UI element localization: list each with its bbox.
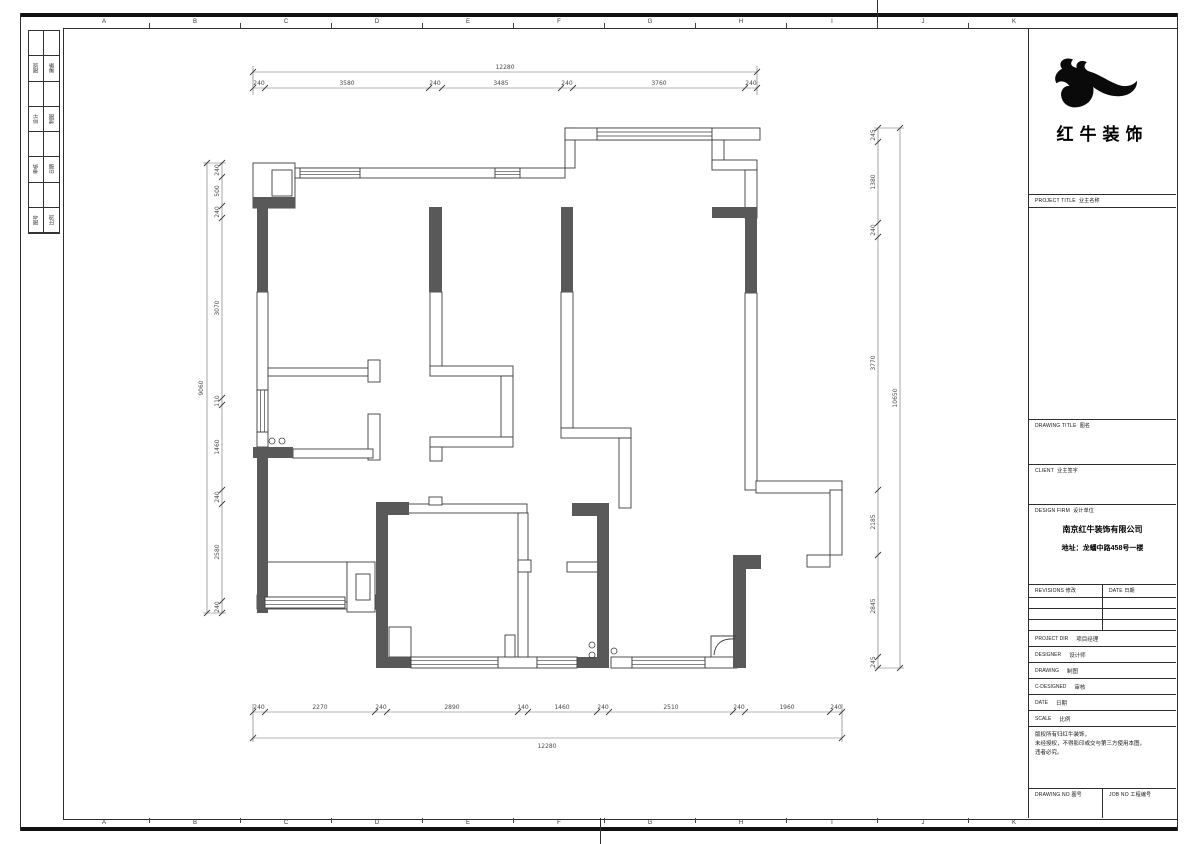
- wall-outline: [272, 170, 292, 196]
- copyright-notes: 版权所有归红牛装饰，未经授权，不得影印或交与第三方使用本图，违者必究。: [1029, 727, 1176, 789]
- wall-outline: [611, 657, 632, 668]
- dimension-label: 500: [214, 185, 221, 197]
- revision-row-empty: [1029, 598, 1176, 609]
- revision-row-empty: [1029, 620, 1176, 631]
- wall-outline: [498, 657, 537, 668]
- drawing-sheet: { "sheet": { "grid": { "letters": ["A","…: [0, 0, 1200, 844]
- window: [632, 657, 705, 668]
- wall-outline: [268, 368, 376, 376]
- dimension-label: 240: [870, 224, 877, 236]
- title-block: 红牛装饰 PROJECT TITLE 业主名称 DRAWING TITLE 图名…: [1028, 28, 1176, 818]
- dimension-label: 2845: [870, 598, 877, 613]
- dimension-label: 240: [214, 601, 221, 613]
- wall-solid: [572, 503, 609, 516]
- dimension-label: 2270: [312, 704, 327, 711]
- project-info-empty-cell: [1029, 208, 1176, 420]
- wall-outline: [265, 562, 347, 602]
- wall-solid: [257, 447, 268, 613]
- wall-outline: [257, 292, 268, 390]
- dimension-label: 3485: [493, 80, 508, 87]
- signature-row: PROJECT DIR项目经理: [1029, 631, 1176, 647]
- window: [495, 168, 520, 178]
- signature-row: C-DESIGNED审核: [1029, 679, 1176, 695]
- wall-solid: [745, 218, 757, 293]
- dimension-label: 3580: [339, 80, 354, 87]
- dimension-label: 110: [214, 395, 221, 407]
- wall-outline: [712, 160, 757, 170]
- drawing-no-cell: DRAWING NO 图号: [1029, 789, 1102, 818]
- wall-outline: [561, 292, 573, 428]
- wall-outline: [293, 449, 373, 458]
- note-line: 版权所有归红牛装饰，: [1035, 731, 1172, 740]
- window: [537, 657, 577, 668]
- wall-solid: [429, 207, 442, 292]
- shower-corner-arc: [714, 639, 735, 655]
- signature-row: DRAWING制图: [1029, 663, 1176, 679]
- signature-row: DESIGNER设计师: [1029, 647, 1176, 663]
- dimension-label: 240: [830, 704, 842, 711]
- wall-solid: [376, 502, 409, 515]
- project-title-label: PROJECT TITLE 业主名称: [1029, 195, 1176, 204]
- wall-outline: [807, 555, 830, 567]
- wall-outline: [501, 376, 513, 437]
- wall-outline: [518, 513, 528, 657]
- dimension-label: 1380: [870, 174, 877, 189]
- signature-row: SCALE比例: [1029, 711, 1176, 727]
- wall-outline: [430, 437, 513, 447]
- dimension-label: 2185: [870, 514, 877, 529]
- dimension-label: 1960: [779, 704, 794, 711]
- wall-solid: [388, 657, 411, 668]
- design-firm-label: DESIGN FIRM 设计单位: [1029, 505, 1176, 514]
- dimension-label: 1460: [554, 704, 569, 711]
- wall-outline: [257, 432, 268, 447]
- dimension-label: 240: [597, 704, 609, 711]
- window: [300, 168, 360, 178]
- company-logo-bull-icon: [1029, 56, 1139, 118]
- door-handle-symbol: [269, 438, 275, 444]
- wall-outline: [430, 366, 513, 376]
- dimension-label: 2890: [444, 704, 459, 711]
- company-logo-text: 红牛装饰: [1029, 120, 1176, 145]
- wall-outline: [830, 490, 842, 555]
- revision-date-label: DATE 日期: [1102, 585, 1176, 597]
- wall-outline: [705, 657, 737, 668]
- note-line: 未经授权，不得影印或交与第三方使用本图，: [1035, 740, 1172, 749]
- revisions-label: REVISIONS 修改: [1029, 585, 1102, 597]
- wall-outline: [505, 635, 515, 657]
- wall-solid: [253, 197, 295, 208]
- dimension-label: 240: [561, 80, 573, 87]
- wall-outline: [561, 428, 631, 438]
- dimension-label: 240: [253, 80, 265, 87]
- company-name: 南京红牛装饰有限公司: [1029, 524, 1176, 535]
- wall-solid: [561, 207, 573, 292]
- wall-outline: [430, 447, 442, 461]
- dimension-label: 240: [214, 491, 221, 503]
- wall-outline: [567, 562, 598, 572]
- client-label: CLIENT 业主签字: [1029, 465, 1176, 474]
- window: [257, 390, 268, 432]
- window: [411, 657, 498, 668]
- dimension-label: 12280: [495, 64, 514, 71]
- dimension-label: 245: [870, 656, 877, 668]
- wall-solid: [712, 207, 757, 218]
- window: [597, 128, 712, 140]
- door-handle-symbol: [589, 642, 595, 648]
- signature-row: DATE日期: [1029, 695, 1176, 711]
- wall-solid: [597, 516, 609, 668]
- dimension-label: 240: [253, 704, 265, 711]
- dimension-label: 2510: [663, 704, 678, 711]
- floor-plan-svg: 1228024035802403485240376024024022702402…: [0, 0, 1200, 844]
- dimension-label: 9060: [198, 380, 205, 395]
- dimension-label: 240: [214, 164, 221, 176]
- door-handle-symbol: [279, 438, 285, 444]
- dimension-label: 240: [375, 704, 387, 711]
- wall-outline: [389, 627, 411, 657]
- drawing-title-label: DRAWING TITLE 图名: [1029, 420, 1176, 429]
- wall-outline: [518, 560, 531, 572]
- wall-outline: [408, 504, 527, 513]
- dimension-label: 12280: [537, 743, 556, 750]
- window: [265, 597, 345, 608]
- dimension-label: 240: [733, 704, 745, 711]
- door-handle-symbol: [611, 648, 617, 654]
- company-address: 地址：龙蟠中路458号一楼: [1029, 543, 1176, 553]
- wall-outline: [368, 360, 380, 382]
- wall-solid: [733, 569, 746, 668]
- wall-outline: [745, 293, 757, 490]
- dimension-label: 245: [870, 129, 877, 141]
- job-no-cell: JOB NO 工程编号: [1102, 789, 1176, 818]
- note-line: 违者必究。: [1035, 749, 1172, 758]
- dimension-label: 140: [517, 704, 529, 711]
- dimension-label: 240: [745, 80, 757, 87]
- dimension-label: 2580: [214, 544, 221, 559]
- revision-row-empty: [1029, 609, 1176, 620]
- dimension-label: 1460: [214, 439, 221, 454]
- wall-outline: [619, 438, 631, 508]
- wall-solid: [577, 657, 597, 668]
- wall-outline: [756, 481, 842, 493]
- dimension-label: 3070: [214, 300, 221, 315]
- wall-solid: [376, 502, 388, 668]
- wall-solid: [733, 555, 761, 569]
- wall-outline: [430, 292, 442, 368]
- wall-solid: [257, 207, 268, 292]
- wall-outline: [429, 497, 442, 505]
- wall-outline: [356, 574, 370, 600]
- dimension-label: 10650: [892, 388, 899, 407]
- dimension-label: 240: [429, 80, 441, 87]
- dimension-label: 240: [214, 206, 221, 218]
- signature-rows: PROJECT DIR项目经理DESIGNER设计师DRAWING制图C-DES…: [1029, 631, 1176, 727]
- dimension-label: 3770: [870, 355, 877, 370]
- dimension-label: 3760: [651, 80, 666, 87]
